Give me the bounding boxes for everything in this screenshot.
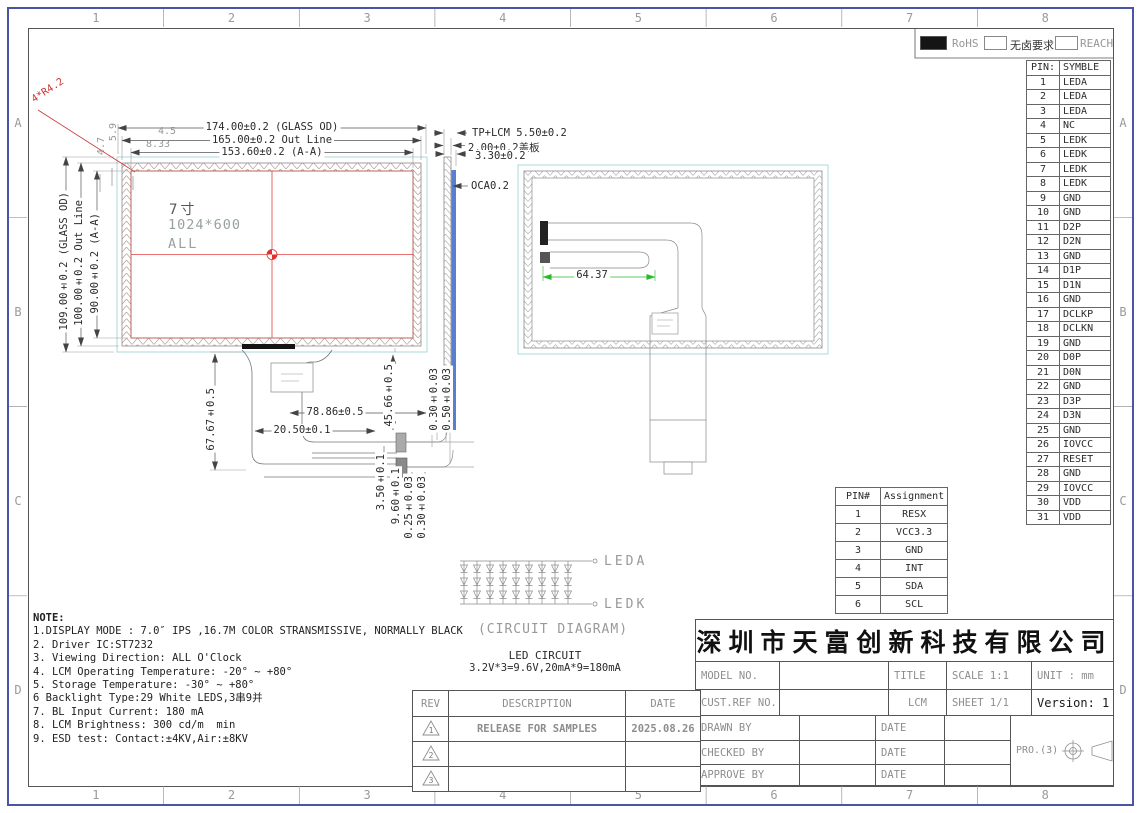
revision-triangle-icon: 2 bbox=[422, 745, 440, 761]
pin-symbol-cell: NC bbox=[1060, 119, 1111, 134]
pin-symbol-cell: VDD bbox=[1060, 496, 1111, 511]
pin-symbol-cell: GND bbox=[1060, 380, 1111, 395]
pin-symbol-cell: LEDA bbox=[1060, 75, 1111, 90]
pin-number-cell: 24 bbox=[1027, 409, 1060, 424]
pin-table-row: 27 RESET bbox=[1027, 452, 1111, 467]
pin-symbol-cell: GND bbox=[1060, 423, 1111, 438]
checked-date-value bbox=[944, 740, 1011, 765]
drawn-date-value bbox=[944, 715, 1011, 741]
pin-number-cell: 19 bbox=[1027, 336, 1060, 351]
fpc-bond-bar bbox=[242, 344, 295, 349]
pin-number-cell: 6 bbox=[1027, 148, 1060, 163]
zone-row-label: A bbox=[1114, 28, 1132, 217]
assignment-pin-cell: 4 bbox=[836, 560, 881, 578]
sheet-label: SHEET 1/1 bbox=[946, 689, 1032, 716]
pin-table-row: 31 VDD bbox=[1027, 510, 1111, 525]
pin-number-cell: 25 bbox=[1027, 423, 1060, 438]
pin-symbol-cell: LEDK bbox=[1060, 133, 1111, 148]
leda-terminal-icon bbox=[593, 559, 597, 563]
dim-fpc-height: 67.67±0.5 bbox=[205, 386, 217, 453]
pin-number-cell: 9 bbox=[1027, 191, 1060, 206]
rohs-label: RoHS bbox=[952, 37, 979, 50]
revision-triangle-icon: 3 bbox=[422, 770, 440, 786]
dim-back-fpc-length: 64.37 bbox=[574, 269, 610, 281]
revision-row: 3 bbox=[413, 767, 701, 792]
assignment-pin-cell: 6 bbox=[836, 596, 881, 614]
zone-row-label: D bbox=[9, 596, 27, 785]
led-diode-grid bbox=[461, 561, 572, 604]
dim-fpc-tail: 45.66±0.5 bbox=[383, 362, 395, 429]
title-label: TITLE bbox=[888, 661, 947, 690]
pin-number-cell: 2 bbox=[1027, 90, 1060, 105]
revision-row: 2 bbox=[413, 742, 701, 767]
pin-table: PIN: SYMBLE 1 LEDA 2 LEDA 3 LEDA 4 NC bbox=[1026, 60, 1111, 525]
front-view-geometry bbox=[117, 157, 427, 352]
revision-triangle-icon: 1 bbox=[422, 720, 440, 736]
pin-number-cell: 3 bbox=[1027, 104, 1060, 119]
dim-tp-lcm-thickness: TP+LCM 5.50±0.2 bbox=[470, 127, 569, 139]
pin-table-row: 18 DCLKN bbox=[1027, 322, 1111, 337]
dim-aa-height: 90.00±0.2 (A-A) bbox=[89, 211, 101, 316]
connector-end-upper bbox=[396, 433, 406, 452]
assignment-value-cell: RESX bbox=[881, 506, 948, 524]
halogen-free-checkbox bbox=[984, 36, 1007, 50]
zone-row-label: A bbox=[9, 28, 27, 217]
zone-column-label: 6 bbox=[706, 786, 842, 804]
fpc-connector-1 bbox=[540, 221, 548, 245]
rohs-checkbox bbox=[920, 36, 947, 50]
scale-label: SCALE 1:1 bbox=[946, 661, 1032, 690]
reach-checkbox bbox=[1055, 36, 1078, 50]
assignment-pin-header: PIN# bbox=[836, 488, 881, 506]
dim-glass-od-width: 174.00±0.2 (GLASS OD) bbox=[204, 121, 341, 133]
pin-table-row: 2 LEDA bbox=[1027, 90, 1111, 105]
pin-table-row: 4 NC bbox=[1027, 119, 1111, 134]
cust-ref-label: CUST.REF NO. bbox=[695, 689, 780, 716]
pin-symbol-cell: D0P bbox=[1060, 351, 1111, 366]
pin-symbol-cell: D3P bbox=[1060, 394, 1111, 409]
dim-aa-width: 153.60±0.2 (A-A) bbox=[219, 146, 324, 158]
drawn-by-label: DRAWN BY bbox=[695, 715, 800, 741]
product-type: LCM bbox=[888, 689, 947, 716]
note-line: 2. Driver IC:ST7232 bbox=[33, 639, 463, 652]
pin-number-cell: 14 bbox=[1027, 264, 1060, 279]
pin-symbol-cell: LEDK bbox=[1060, 162, 1111, 177]
version-label: Version: 1 bbox=[1031, 689, 1114, 716]
zone-row-label: C bbox=[9, 407, 27, 596]
checked-date-label: DATE bbox=[875, 740, 945, 765]
zone-column-label: 5 bbox=[571, 9, 707, 27]
pin-table-row: 21 D0N bbox=[1027, 365, 1111, 380]
pin-table-row: 20 D0P bbox=[1027, 351, 1111, 366]
zone-column-label: 6 bbox=[706, 9, 842, 27]
pin-table-row: 12 D2N bbox=[1027, 235, 1111, 250]
back-view-geometry bbox=[518, 165, 828, 474]
assignment-table-header: PIN# Assignment bbox=[836, 488, 948, 506]
zone-column-label: 7 bbox=[842, 786, 978, 804]
pin-table-row: 30 VDD bbox=[1027, 496, 1111, 511]
leda-terminal-label: LEDA bbox=[602, 554, 649, 569]
pin-number-cell: 26 bbox=[1027, 438, 1060, 453]
pin-symbol-cell: IOVCC bbox=[1060, 438, 1111, 453]
zone-column-label: 1 bbox=[28, 9, 164, 27]
ledk-terminal-icon bbox=[593, 602, 597, 606]
note-line: 8. LCM Brightness: 300 cd/m min bbox=[33, 719, 463, 732]
pin-symbol-cell: RESET bbox=[1060, 452, 1111, 467]
note-line: 7. BL Input Current: 180 mA bbox=[33, 706, 463, 719]
note-line: 5. Storage Temperature: -30° ~ +80° bbox=[33, 679, 463, 692]
assignment-pin-cell: 3 bbox=[836, 542, 881, 560]
pin-table-row: 25 GND bbox=[1027, 423, 1111, 438]
checked-by-label: CHECKED BY bbox=[695, 740, 800, 765]
led-circuit-spec: 3.2V*3=9.6V,20mA*9=180mA bbox=[467, 662, 623, 674]
pin-table-row: 17 DCLKP bbox=[1027, 307, 1111, 322]
pin-symbol-cell: GND bbox=[1060, 191, 1111, 206]
assignment-value-cell: GND bbox=[881, 542, 948, 560]
assignment-header: Assignment bbox=[881, 488, 948, 506]
note-line: 6 Backlight Type:29 White LEDS,3串9并 bbox=[33, 692, 463, 705]
dim-thickness-4: 9.60±0.1 bbox=[390, 466, 402, 526]
pin-number-cell: 22 bbox=[1027, 380, 1060, 395]
revision-symbol-cell: 3 bbox=[413, 767, 449, 792]
assignment-pin-cell: 5 bbox=[836, 578, 881, 596]
back-fpc-connector bbox=[650, 420, 706, 462]
pin-symbol-cell: D1N bbox=[1060, 278, 1111, 293]
pin-number-cell: 30 bbox=[1027, 496, 1060, 511]
notes-heading: NOTE: bbox=[33, 612, 463, 625]
pin-number-cell: 18 bbox=[1027, 322, 1060, 337]
panel-size-label: 7寸 bbox=[167, 199, 199, 219]
reach-label: REACH bbox=[1080, 37, 1113, 50]
assignment-table-row: 5 SDA bbox=[836, 578, 948, 596]
pin-table-row: 13 GND bbox=[1027, 249, 1111, 264]
pin-number-cell: 29 bbox=[1027, 481, 1060, 496]
pin-number-cell: 27 bbox=[1027, 452, 1060, 467]
revision-description-cell: RELEASE FOR SAMPLES bbox=[449, 717, 626, 742]
zone-column-label: 8 bbox=[977, 9, 1113, 27]
svg-text:1: 1 bbox=[428, 726, 433, 735]
pin-table-row: 28 GND bbox=[1027, 467, 1111, 482]
pin-number-cell: 11 bbox=[1027, 220, 1060, 235]
dim-oca-thickness: OCA0.2 bbox=[469, 180, 511, 192]
pin-table-row: 16 GND bbox=[1027, 293, 1111, 308]
pin-number-cell: 7 bbox=[1027, 162, 1060, 177]
pin-table-row: 7 LEDK bbox=[1027, 162, 1111, 177]
zone-row-label: C bbox=[1114, 407, 1132, 596]
zone-row-label: B bbox=[1114, 217, 1132, 406]
pin-table-row: 11 D2P bbox=[1027, 220, 1111, 235]
approve-date-value bbox=[944, 764, 1011, 786]
assignment-value-cell: SDA bbox=[881, 578, 948, 596]
pin-symbol-cell: D1P bbox=[1060, 264, 1111, 279]
pin-table-row: 9 GND bbox=[1027, 191, 1111, 206]
zone-columns-top: 12345678 bbox=[28, 9, 1113, 27]
projection-label: PRO.(3) bbox=[1016, 745, 1058, 756]
pin-number-cell: 5 bbox=[1027, 133, 1060, 148]
assignment-value-cell: VCC3.3 bbox=[881, 524, 948, 542]
pin-symbol-cell: D2P bbox=[1060, 220, 1111, 235]
dim-outline-height: 100.00±0.2 Out Line bbox=[73, 198, 85, 328]
assignment-table-row: 6 SCL bbox=[836, 596, 948, 614]
revision-table: REV DESCRIPTION DATE 1 RELEASE FOR SAMPL… bbox=[412, 690, 701, 792]
dim-glass-od-height: 109.00±0.2 (GLASS OD) bbox=[58, 190, 70, 332]
dim-thickness-2: 0.50±0.03 bbox=[441, 366, 453, 433]
pin-table-header: PIN: SYMBLE bbox=[1027, 61, 1111, 76]
pin-number-cell: 15 bbox=[1027, 278, 1060, 293]
dim-thickness-5: 0.25±0.03 bbox=[403, 474, 415, 541]
notes-block: NOTE: 1.DISPLAY MODE : 7.0″ IPS ,16.7M C… bbox=[33, 612, 463, 746]
assignment-table: PIN# Assignment 1 RESX 2 VCC3.3 3 GND 4 … bbox=[835, 487, 948, 614]
ledk-terminal-label: LEDK bbox=[602, 597, 649, 612]
pin-symbol-cell: GND bbox=[1060, 336, 1111, 351]
pin-number-cell: 21 bbox=[1027, 365, 1060, 380]
dim-thickness-1: 0.30±0.03 bbox=[428, 366, 440, 433]
corner-dim-1: 4.5 bbox=[156, 126, 178, 137]
pin-table-row: 8 LEDK bbox=[1027, 177, 1111, 192]
circuit-diagram-caption: (CIRCUIT DIAGRAM) bbox=[476, 622, 630, 637]
zone-column-label: 3 bbox=[299, 9, 435, 27]
model-no-label: MODEL NO. bbox=[695, 661, 780, 690]
svg-text:3: 3 bbox=[428, 776, 433, 785]
label-box bbox=[652, 313, 678, 334]
note-line: 3. Viewing Direction: ALL O'Clock bbox=[33, 652, 463, 665]
pin-number-cell: 1 bbox=[1027, 75, 1060, 90]
zone-column-label: 2 bbox=[164, 9, 300, 27]
revision-symbol-cell: 1 bbox=[413, 717, 449, 742]
led-circuit-geometry bbox=[460, 559, 597, 606]
assignment-table-row: 1 RESX bbox=[836, 506, 948, 524]
note-line: 9. ESD test: Contact:±4KV,Air:±8KV bbox=[33, 733, 463, 746]
pin-number-cell: 13 bbox=[1027, 249, 1060, 264]
description-header: DESCRIPTION bbox=[449, 691, 626, 717]
fpc-component-box bbox=[271, 363, 313, 392]
pin-symbol-cell: D2N bbox=[1060, 235, 1111, 250]
zone-column-label: 4 bbox=[435, 9, 571, 27]
pin-symbol-cell: VDD bbox=[1060, 510, 1111, 525]
pin-table-row: 22 GND bbox=[1027, 380, 1111, 395]
pin-number-cell: 16 bbox=[1027, 293, 1060, 308]
pin-symbol-cell: DCLKN bbox=[1060, 322, 1111, 337]
model-no-value bbox=[779, 661, 889, 690]
zone-rows-right: ABCD bbox=[1114, 28, 1132, 785]
pin-number-cell: 17 bbox=[1027, 307, 1060, 322]
pin-number-cell: 10 bbox=[1027, 206, 1060, 221]
pin-number-cell: 4 bbox=[1027, 119, 1060, 134]
assignment-table-row: 2 VCC3.3 bbox=[836, 524, 948, 542]
cust-ref-value bbox=[779, 689, 889, 716]
checked-by-value bbox=[799, 740, 876, 765]
zone-column-label: 1 bbox=[28, 786, 164, 804]
pin-table-row: 26 IOVCC bbox=[1027, 438, 1111, 453]
zone-row-label: D bbox=[1114, 596, 1132, 785]
zone-row-label: B bbox=[9, 217, 27, 406]
approve-date-label: DATE bbox=[875, 764, 945, 786]
revision-date-cell: 2025.08.26 bbox=[626, 717, 701, 742]
pin-number-cell: 8 bbox=[1027, 177, 1060, 192]
pin-number-cell: 31 bbox=[1027, 510, 1060, 525]
pin-symbol-cell: D3N bbox=[1060, 409, 1111, 424]
pin-table-row: 23 D3P bbox=[1027, 394, 1111, 409]
pin-table-row: 14 D1P bbox=[1027, 264, 1111, 279]
assignment-pin-cell: 2 bbox=[836, 524, 881, 542]
pin-table-row: 5 LEDK bbox=[1027, 133, 1111, 148]
zone-column-label: 7 bbox=[842, 9, 978, 27]
pin-symbol-cell: GND bbox=[1060, 249, 1111, 264]
zone-column-label: 2 bbox=[164, 786, 300, 804]
active-area-label: ALL bbox=[166, 236, 200, 252]
revision-date-cell bbox=[626, 742, 701, 767]
date-header: DATE bbox=[626, 691, 701, 717]
zone-rows-left: ABCD bbox=[9, 28, 27, 785]
pin-symbol-cell: GND bbox=[1060, 206, 1111, 221]
corner-radius-callout bbox=[38, 110, 135, 192]
svg-text:2: 2 bbox=[428, 751, 433, 760]
pin-table-row: 10 GND bbox=[1027, 206, 1111, 221]
revision-date-cell bbox=[626, 767, 701, 792]
pin-symbol-cell: LEDA bbox=[1060, 104, 1111, 119]
pin-symbol-cell: LEDK bbox=[1060, 177, 1111, 192]
pin-table-row: 24 D3N bbox=[1027, 409, 1111, 424]
dim-fpc-offset: 20.50±0.1 bbox=[272, 424, 333, 436]
halogen-free-label: 无卤要求 bbox=[1010, 37, 1054, 53]
projection-cell: PRO.(3) bbox=[1010, 715, 1114, 786]
dim-thickness-3: 3.50±0.1 bbox=[375, 452, 387, 512]
pin-symbol-cell: D0N bbox=[1060, 365, 1111, 380]
corner-dim-4: 4.7 bbox=[96, 135, 107, 157]
pin-header-cell: PIN: bbox=[1027, 61, 1060, 76]
pin-symbol-cell: GND bbox=[1060, 467, 1111, 482]
pin-table-row: 3 LEDA bbox=[1027, 104, 1111, 119]
pin-number-cell: 28 bbox=[1027, 467, 1060, 482]
pin-table-row: 6 LEDK bbox=[1027, 148, 1111, 163]
panel-resolution-label: 1024*600 bbox=[166, 217, 243, 233]
corner-dim-2: 8.33 bbox=[144, 139, 172, 150]
company-name: 深圳市天富创新科技有限公司 bbox=[695, 619, 1114, 662]
note-line: 4. LCM Operating Temperature: -20° ~ +80… bbox=[33, 666, 463, 679]
pin-table-row: 1 LEDA bbox=[1027, 75, 1111, 90]
revision-description-cell bbox=[449, 742, 626, 767]
pin-symbol-cell: DCLKP bbox=[1060, 307, 1111, 322]
drawn-by-value bbox=[799, 715, 876, 741]
pin-number-cell: 23 bbox=[1027, 394, 1060, 409]
revision-header-row: REV DESCRIPTION DATE bbox=[413, 691, 701, 717]
pin-table-row: 29 IOVCC bbox=[1027, 481, 1111, 496]
fpc-connector-2 bbox=[540, 252, 550, 263]
rev-header: REV bbox=[413, 691, 449, 717]
dim-fpc-width: 78.86±0.5 bbox=[305, 406, 366, 418]
symbol-header-cell: SYMBLE bbox=[1060, 61, 1111, 76]
pin-table-row: 15 D1N bbox=[1027, 278, 1111, 293]
assignment-pin-cell: 1 bbox=[836, 506, 881, 524]
revision-row: 1 RELEASE FOR SAMPLES 2025.08.26 bbox=[413, 717, 701, 742]
assignment-value-cell: SCL bbox=[881, 596, 948, 614]
revision-symbol-cell: 2 bbox=[413, 742, 449, 767]
third-angle-projection-icon bbox=[1060, 737, 1113, 765]
approve-by-value bbox=[799, 764, 876, 786]
pin-number-cell: 12 bbox=[1027, 235, 1060, 250]
pin-table-row: 19 GND bbox=[1027, 336, 1111, 351]
assignment-table-row: 4 INT bbox=[836, 560, 948, 578]
note-line: 1.DISPLAY MODE : 7.0″ IPS ,16.7M COLOR S… bbox=[33, 625, 463, 638]
zone-column-label: 8 bbox=[977, 786, 1113, 804]
led-circuit-title: LED CIRCUIT bbox=[507, 649, 584, 662]
dim-outline-width: 165.00±0.2 Out Line bbox=[210, 134, 334, 146]
pin-symbol-cell: LEDK bbox=[1060, 148, 1111, 163]
drawn-date-label: DATE bbox=[875, 715, 945, 741]
dim-thickness-6: 0.30±0.03 bbox=[416, 474, 428, 541]
pin-symbol-cell: IOVCC bbox=[1060, 481, 1111, 496]
pin-symbol-cell: LEDA bbox=[1060, 90, 1111, 105]
assignment-value-cell: INT bbox=[881, 560, 948, 578]
pin-number-cell: 20 bbox=[1027, 351, 1060, 366]
corner-dim-3: 5.9 bbox=[108, 121, 119, 143]
revision-description-cell bbox=[449, 767, 626, 792]
approve-by-label: APPROVE BY bbox=[695, 764, 800, 786]
assignment-table-row: 3 GND bbox=[836, 542, 948, 560]
dim-lcm-thickness: 3.30±0.2 bbox=[473, 150, 528, 162]
unit-label: UNIT : mm bbox=[1031, 661, 1114, 690]
pin-symbol-cell: GND bbox=[1060, 293, 1111, 308]
